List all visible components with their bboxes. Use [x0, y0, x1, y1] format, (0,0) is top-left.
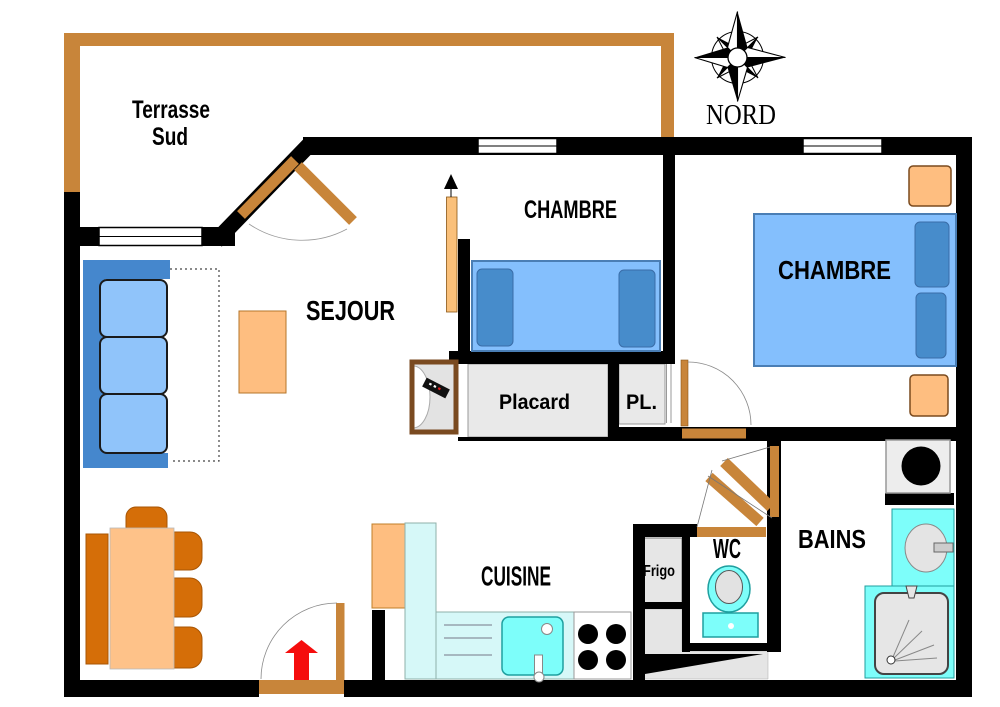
svg-text:PL.: PL.	[626, 391, 657, 414]
svg-text:CHAMBRE: CHAMBRE	[778, 255, 891, 285]
svg-text:WC: WC	[713, 533, 741, 564]
svg-text:NORD: NORD	[706, 99, 776, 131]
svg-text:CHAMBRE: CHAMBRE	[524, 196, 617, 224]
svg-text:Placard: Placard	[499, 391, 570, 414]
svg-text:BAINS: BAINS	[798, 524, 866, 554]
svg-text:Terrasse: Terrasse	[132, 96, 210, 124]
svg-text:Frigo: Frigo	[643, 563, 675, 580]
svg-text:Sud: Sud	[152, 123, 188, 151]
svg-text:CUISINE: CUISINE	[481, 561, 551, 592]
svg-text:SEJOUR: SEJOUR	[306, 295, 395, 326]
